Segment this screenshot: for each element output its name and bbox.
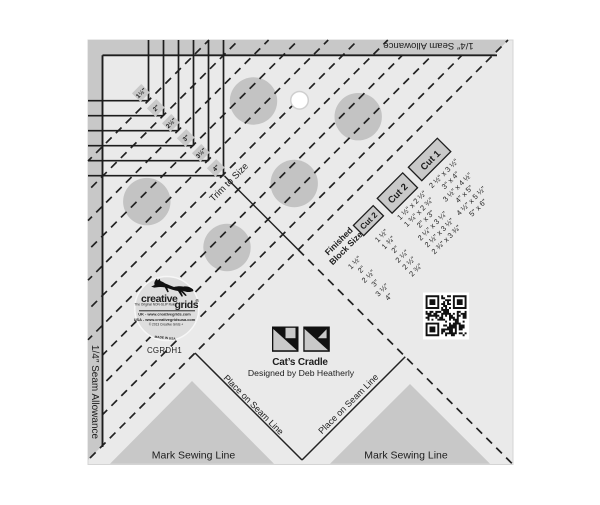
svg-text:The Original NON-SLIP Ruler: The Original NON-SLIP Ruler bbox=[135, 302, 178, 306]
svg-text:Cat’s Cradle: Cat’s Cradle bbox=[272, 357, 328, 368]
svg-text:1/4″ Seam Allowance: 1/4″ Seam Allowance bbox=[89, 345, 100, 440]
svg-text:CGRDH1: CGRDH1 bbox=[147, 346, 182, 355]
svg-text:Mark Sewing Line: Mark Sewing Line bbox=[364, 450, 448, 462]
svg-text:USA - www.creativegridsusa.com: USA - www.creativegridsusa.com bbox=[134, 317, 196, 322]
svg-text:1/4″ Seam Allowance: 1/4″ Seam Allowance bbox=[383, 40, 473, 51]
svg-text:Designed by Deb Heatherly: Designed by Deb Heatherly bbox=[248, 368, 355, 378]
svg-text:Mark Sewing Line: Mark Sewing Line bbox=[152, 450, 236, 462]
svg-text:© 2013 Creative Grids +: © 2013 Creative Grids + bbox=[149, 322, 183, 326]
